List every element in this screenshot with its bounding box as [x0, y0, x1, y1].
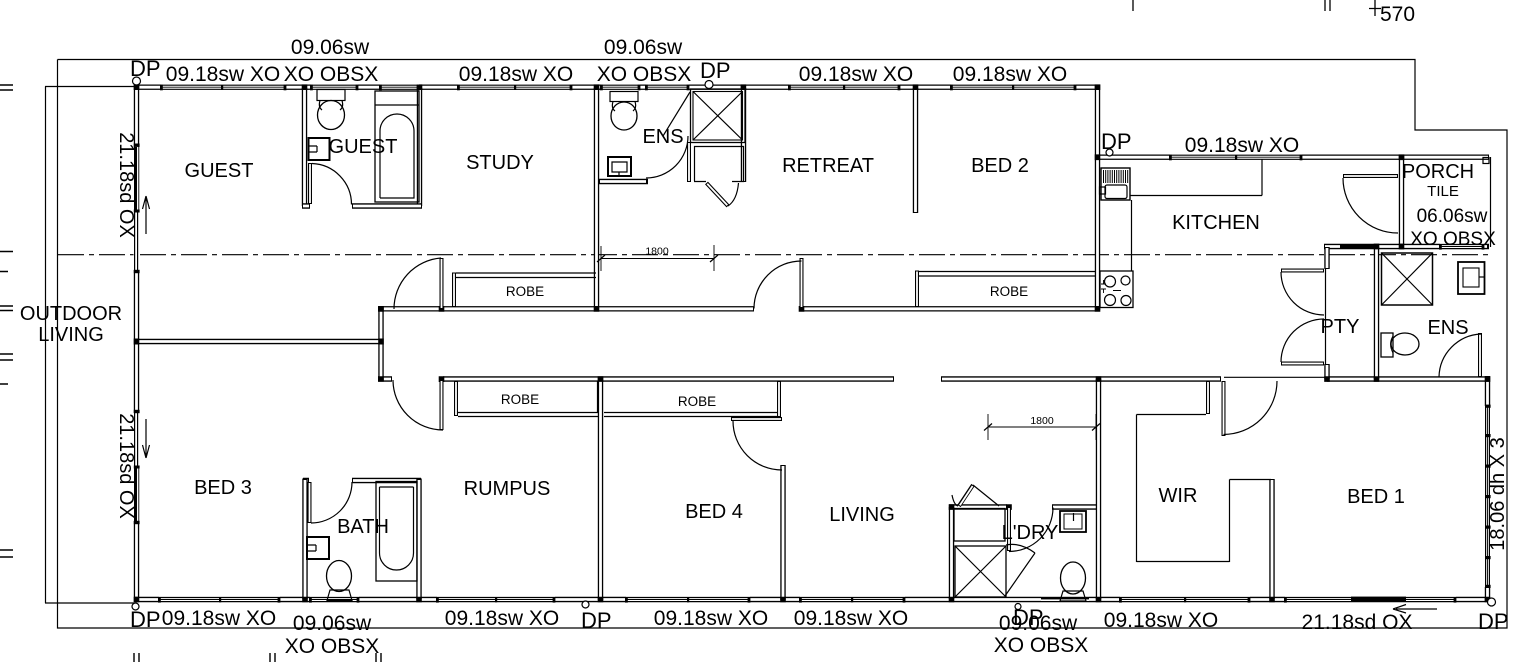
svg-text:BATH: BATH: [337, 516, 389, 538]
svg-text:ROBE: ROBE: [506, 284, 544, 299]
svg-text:XO OBSX: XO OBSX: [1410, 229, 1496, 250]
svg-text:XO OBSX: XO OBSX: [284, 63, 379, 86]
svg-text:DP: DP: [700, 58, 731, 83]
svg-text:09.06sw: 09.06sw: [291, 36, 370, 59]
svg-text:BED 4: BED 4: [685, 501, 743, 523]
svg-text:L'DRY: L'DRY: [1002, 522, 1059, 544]
svg-text:09.06sw: 09.06sw: [293, 612, 372, 635]
svg-text:09.18sw XO: 09.18sw XO: [162, 607, 276, 630]
svg-text:21.18sd OX: 21.18sd OX: [1302, 611, 1413, 634]
svg-text:PTY: PTY: [1321, 316, 1360, 338]
svg-text:09.18sw XO: 09.18sw XO: [654, 607, 768, 630]
svg-text:09.18sw XO: 09.18sw XO: [794, 607, 908, 630]
svg-text:ROBE: ROBE: [990, 284, 1028, 299]
svg-text:09.06sw: 09.06sw: [999, 612, 1078, 635]
svg-text:09.18sw XO: 09.18sw XO: [445, 607, 559, 630]
svg-text:WIR: WIR: [1159, 485, 1198, 507]
svg-text:GUEST: GUEST: [185, 160, 254, 182]
svg-text:21.18sd OX: 21.18sd OX: [115, 132, 137, 238]
svg-text:09.18sw XO: 09.18sw XO: [166, 63, 280, 86]
svg-text:06.06sw: 06.06sw: [1417, 206, 1488, 227]
svg-text:09.18sw XO: 09.18sw XO: [953, 63, 1067, 86]
svg-text:BED 3: BED 3: [194, 477, 252, 499]
svg-text:21.18sd OX: 21.18sd OX: [115, 413, 137, 519]
svg-text:09.18sw XO: 09.18sw XO: [799, 63, 913, 86]
svg-text:570: 570: [1380, 3, 1415, 26]
svg-text:DP: DP: [1478, 609, 1509, 634]
svg-text:ROBE: ROBE: [678, 394, 716, 409]
svg-text:TILE: TILE: [1427, 183, 1459, 200]
svg-text:09.18sw XO: 09.18sw XO: [1104, 609, 1218, 632]
svg-text:09.18sw XO: 09.18sw XO: [1185, 134, 1299, 157]
svg-text:ROBE: ROBE: [501, 392, 539, 407]
svg-text:RETREAT: RETREAT: [782, 155, 874, 177]
svg-text:DP: DP: [581, 608, 612, 633]
svg-text:1800: 1800: [645, 246, 669, 258]
svg-text:LIVING: LIVING: [829, 504, 895, 526]
svg-text:ENS: ENS: [1427, 317, 1468, 339]
svg-text:BED 1: BED 1: [1347, 486, 1405, 508]
svg-text:XO OBSX: XO OBSX: [597, 63, 692, 86]
svg-text:BED 2: BED 2: [971, 155, 1029, 177]
svg-text:DP: DP: [130, 607, 161, 632]
svg-text:XO OBSX: XO OBSX: [994, 634, 1089, 657]
svg-text:PORCH: PORCH: [1402, 161, 1474, 183]
svg-text:XO OBSX: XO OBSX: [285, 635, 380, 658]
svg-text:DP: DP: [1101, 129, 1132, 154]
svg-text:18.06 dh X 3: 18.06 dh X 3: [1487, 437, 1509, 550]
svg-text:09.18sw XO: 09.18sw XO: [459, 63, 573, 86]
svg-text:OUTDOOR: OUTDOOR: [20, 303, 122, 325]
svg-text:GUEST: GUEST: [329, 136, 398, 158]
svg-text:1800: 1800: [1030, 415, 1054, 427]
svg-text:ENS: ENS: [642, 126, 683, 148]
svg-text:KITCHEN: KITCHEN: [1172, 212, 1260, 234]
svg-text:DP: DP: [130, 56, 161, 81]
svg-text:RUMPUS: RUMPUS: [464, 478, 551, 500]
svg-text:STUDY: STUDY: [466, 152, 534, 174]
svg-text:LIVING: LIVING: [38, 324, 104, 346]
svg-text:09.06sw: 09.06sw: [604, 36, 683, 59]
